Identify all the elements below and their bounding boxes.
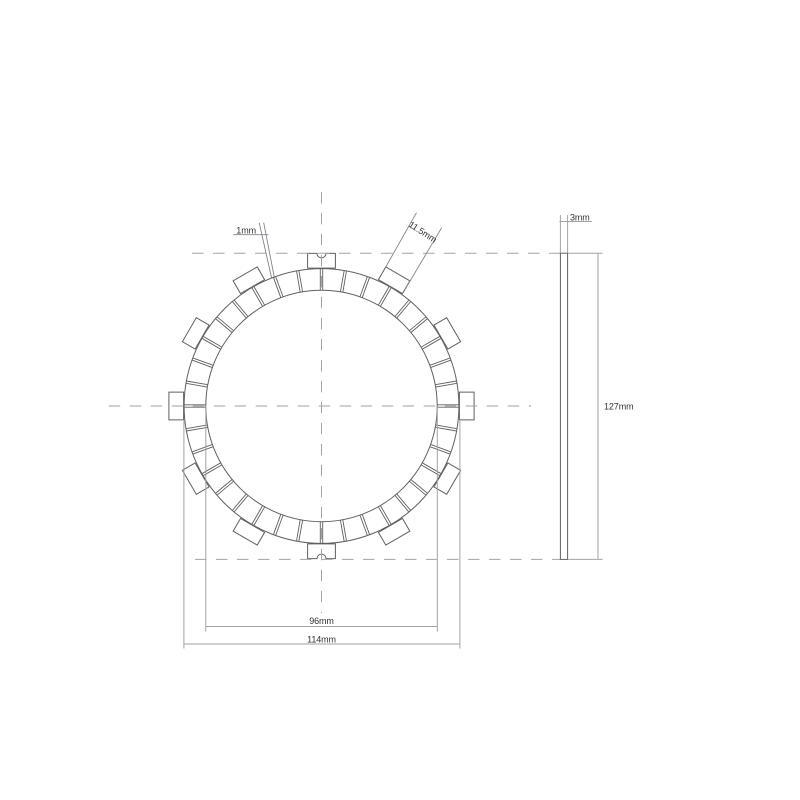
svg-text:11.5mm: 11.5mm	[407, 219, 439, 244]
svg-text:127mm: 127mm	[604, 402, 634, 412]
svg-text:1mm: 1mm	[236, 226, 256, 236]
svg-text:114mm: 114mm	[307, 635, 336, 645]
svg-text:96mm: 96mm	[309, 616, 334, 626]
svg-text:3mm: 3mm	[570, 212, 590, 222]
